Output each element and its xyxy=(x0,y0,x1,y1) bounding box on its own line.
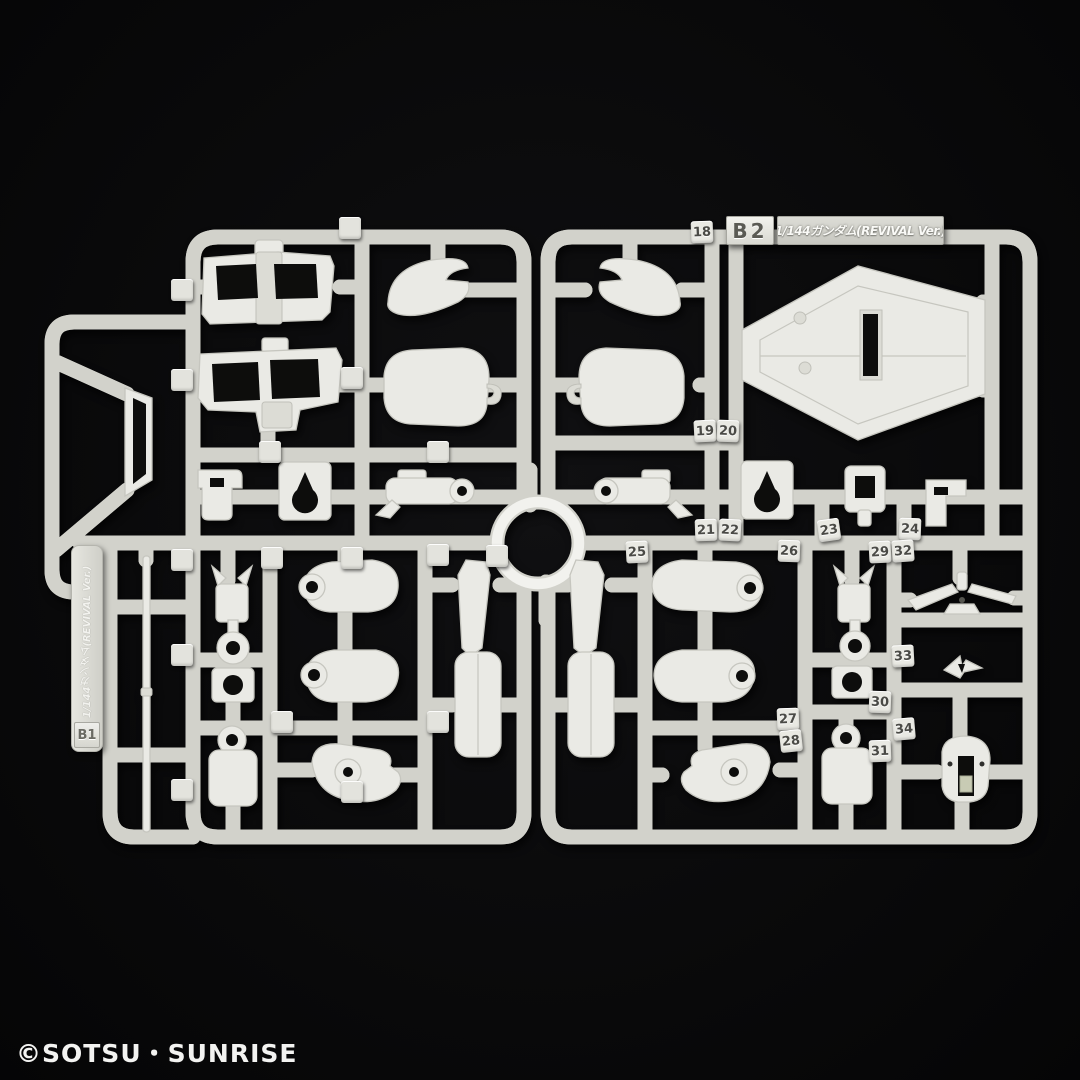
part-bracket-right xyxy=(845,466,885,526)
runner-b1-code: B1 xyxy=(74,722,100,748)
part-stand-brace xyxy=(125,388,152,496)
runner-b1-label-text: 1/144ガンダム(REVIVAL Ver.) xyxy=(80,546,95,722)
part-v-fin xyxy=(944,656,982,678)
part-cylinder-right xyxy=(822,724,872,804)
part-thruster-pod-lower-left xyxy=(301,650,399,702)
part-cylinder-left xyxy=(209,726,257,806)
part-arm-pod-left xyxy=(384,348,501,426)
part-chest-frame-upper xyxy=(202,240,334,324)
runner-b2-label-plate: B2 1/144ガンダム(REVIVAL Ver.) xyxy=(726,216,944,245)
part-antenna-wings xyxy=(908,572,1016,614)
part-thruster-pod-upper-left xyxy=(299,560,398,612)
part-joint-square-lower-left xyxy=(212,668,254,702)
part-joint-square-upper-right xyxy=(741,461,793,519)
part-curved-fin-left xyxy=(388,259,469,316)
runner-b2-label-text: 1/144ガンダム(REVIVAL Ver.) xyxy=(777,216,944,245)
part-chest-frame-lower xyxy=(198,338,342,432)
runner-b2-code: B2 xyxy=(726,216,774,245)
part-head-shell xyxy=(942,736,990,802)
photo-stage: 1819202122232425262728293031323334 B2 1/… xyxy=(0,0,1080,1080)
sprue-photo xyxy=(0,0,1080,1080)
part-shield-back xyxy=(742,266,985,440)
part-curved-fin-right xyxy=(599,259,680,316)
runner-b1-label-strip: 1/144ガンダム(REVIVAL Ver.) B1 xyxy=(71,545,103,752)
part-foot-left xyxy=(312,744,401,802)
part-thruster-pod-upper-right xyxy=(652,560,763,612)
part-arm-pod-right xyxy=(567,348,684,426)
part-joint-square-upper-left xyxy=(279,462,331,520)
copyright-text: ©SOTSU・SUNRISE xyxy=(16,1034,297,1070)
part-arm-left xyxy=(376,470,474,518)
part-joint-square-lower-right xyxy=(832,666,872,698)
part-thruster-pod-lower-right xyxy=(654,650,755,702)
part-foot-right xyxy=(681,744,770,802)
part-antenna-rod xyxy=(141,556,152,832)
